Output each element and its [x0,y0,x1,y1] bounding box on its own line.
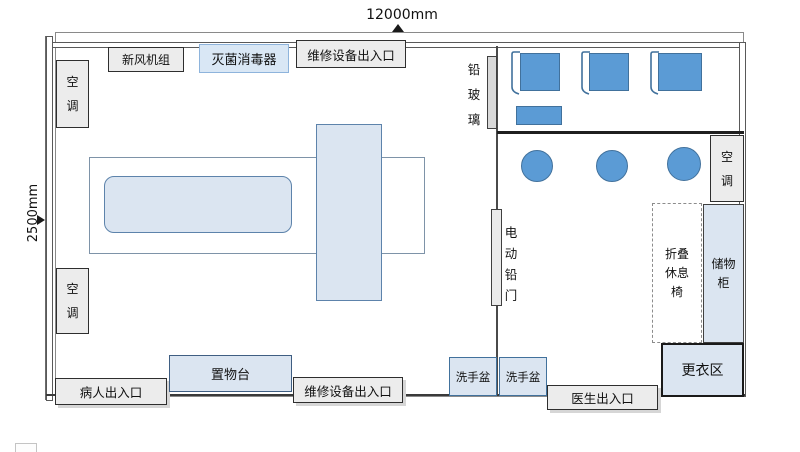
workstation-monitor [520,53,560,91]
lead-glass-label: 铅玻璃 [465,56,483,132]
air-conditioner-label: 空调 [65,70,79,118]
storage-cabinet-box: 储物柜 [703,204,744,343]
folding-rest-chair-text: 折叠休息椅 [664,245,689,302]
fresh-air-unit-box: 新风机组 [108,47,184,72]
dimension-arrow-icon [392,24,404,32]
side-table [516,106,562,125]
dimension-depth-label: 2500mm [25,182,41,244]
maintenance-access-top-box: 维修设备出入口 [296,40,406,68]
wall-control-room [497,131,744,134]
workstation-monitor [589,53,629,91]
floor-plan-canvas: 12000mm 2500mm 新风机组 灭菌消毒器 维修设备出入口 空调 空调 … [0,0,800,452]
dimension-width-label: 12000mm [368,6,436,24]
electric-lead-door-text: 电动铅门 [504,222,518,306]
wall-left [46,36,53,401]
dimension-arrow-icon [37,215,45,225]
lead-glass-panel [487,56,497,129]
wash-basin-right-box: 洗手盆 [499,357,547,396]
air-conditioner-label: 空调 [720,145,734,193]
doctor-access-box: 医生出入口 [547,385,658,410]
sterilizer-box: 灭菌消毒器 [199,44,289,73]
ct-scan-bed [104,176,292,233]
air-conditioner-label: 空调 [65,277,79,325]
wash-basin-left-box: 洗手盆 [449,357,497,396]
stool-circle [667,147,701,181]
changing-area-box: 更衣区 [661,343,744,397]
patient-access-box: 病人出入口 [55,378,167,405]
stool-circle [596,150,628,182]
workstation-monitor [658,53,702,91]
clipped-shape-corner [15,443,37,452]
electric-lead-door-label: 电动铅门 [502,221,520,307]
storage-cabinet-text: 储物柜 [711,255,736,293]
air-conditioner-bottom-left-box: 空调 [56,268,89,334]
air-conditioner-top-left-box: 空调 [56,60,89,128]
maintenance-access-bottom-box: 维修设备出入口 [293,377,403,403]
ct-gantry [316,124,382,301]
lead-glass-text: 铅玻璃 [467,57,481,132]
electric-lead-door [491,209,502,306]
folding-rest-chair-box: 折叠休息椅 [652,203,702,343]
air-conditioner-right-box: 空调 [710,135,744,202]
stool-circle [521,150,553,182]
shelf-counter-box: 置物台 [169,355,292,392]
